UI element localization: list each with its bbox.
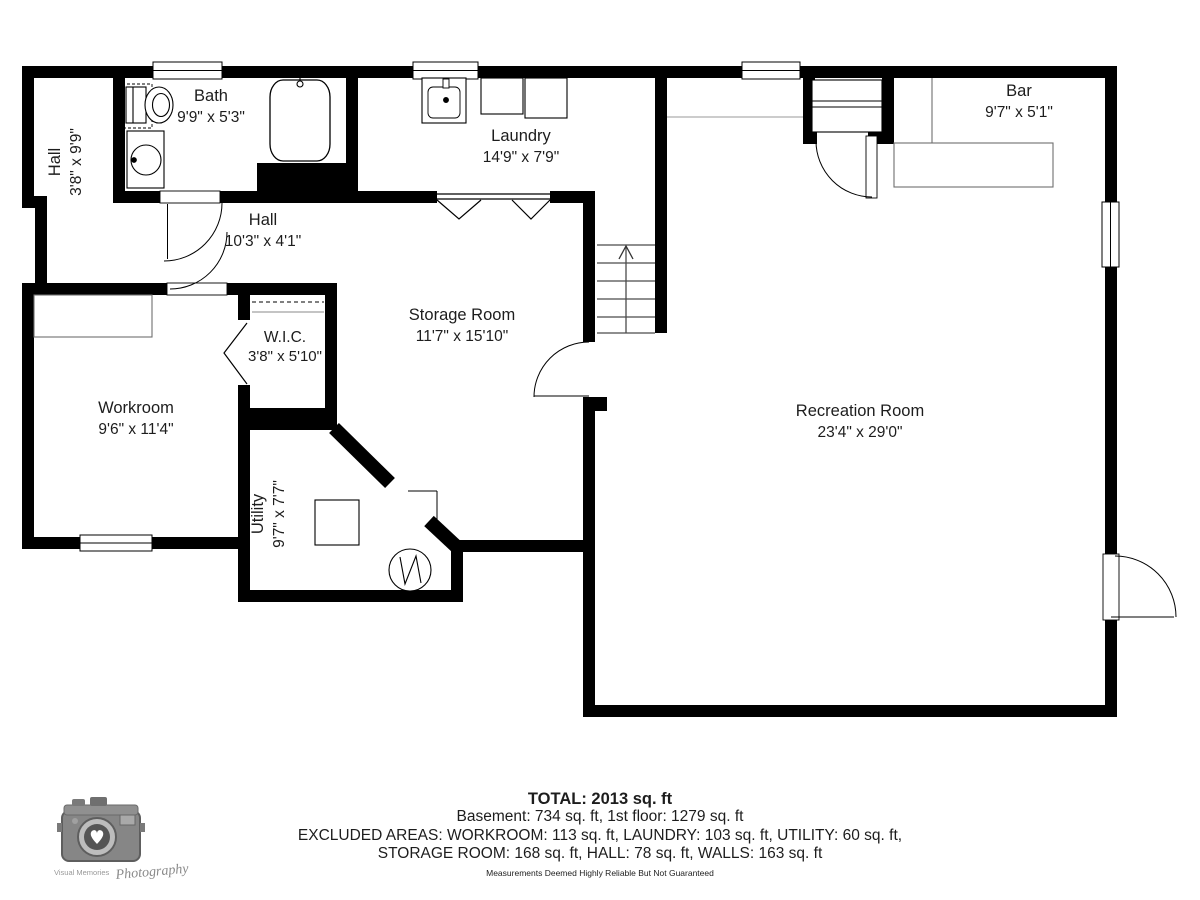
water-heater-icon	[389, 549, 431, 591]
laundry-bifold-door	[437, 194, 550, 219]
room-dims: 10'3" x 4'1"	[225, 231, 301, 252]
room-dims: 9'9" x 5'3"	[177, 107, 245, 128]
bath-sink-icon	[127, 131, 164, 188]
room-name: Laundry	[483, 126, 559, 147]
utility-door	[408, 491, 437, 520]
furnace-icon	[315, 500, 359, 545]
hall-door	[167, 232, 227, 295]
toilet-icon	[122, 84, 173, 128]
room-label-bath: Bath 9'9" x 5'3"	[177, 86, 245, 128]
wic-bifold-door	[224, 323, 247, 384]
room-name: Bath	[177, 86, 245, 107]
room-label-wic: W.I.C. 3'8" x 5'10"	[248, 328, 322, 366]
closet-rod	[252, 302, 324, 312]
room-name: Bar	[985, 81, 1053, 102]
washer-icon	[481, 78, 523, 114]
floor-plan-page: Hall 3'8" x 9'9" Bath 9'9" x 5'3" Laundr…	[0, 0, 1200, 900]
room-name: W.I.C.	[248, 328, 322, 347]
room-dims: 3'8" x 9'9"	[66, 128, 87, 196]
logo-script-text: Photography	[114, 862, 190, 883]
window-top-right	[742, 62, 800, 79]
logo: Visual Memories Photography	[30, 795, 210, 885]
room-label-hall-upper: Hall 3'8" x 9'9"	[45, 128, 87, 196]
room-label-recreation: Recreation Room 23'4" x 29'0"	[796, 401, 924, 443]
room-name: Utility	[248, 480, 269, 548]
window-top-laundry	[413, 62, 478, 79]
closet-door	[816, 136, 877, 198]
room-label-laundry: Laundry 14'9" x 7'9"	[483, 126, 559, 168]
room-name: Hall	[225, 210, 301, 231]
room-dims: 3'8" x 5'10"	[248, 347, 322, 366]
camera-icon	[57, 797, 145, 861]
workroom-counter	[34, 295, 152, 337]
window-recreation-right	[1102, 202, 1119, 267]
windows	[80, 62, 1119, 551]
room-label-workroom: Workroom 9'6" x 11'4"	[98, 398, 174, 440]
dryer-icon	[525, 78, 567, 118]
room-name: Recreation Room	[796, 401, 924, 422]
storage-door	[534, 342, 589, 397]
room-dims: 9'6" x 11'4"	[98, 419, 174, 440]
exterior-door	[1103, 554, 1176, 620]
room-dims: 11'7" x 15'10"	[409, 326, 515, 347]
bathtub-icon	[270, 72, 330, 161]
bath-door	[160, 191, 222, 261]
laundry-sink-icon	[422, 78, 466, 123]
walls	[22, 66, 1117, 717]
room-dims: 23'4" x 29'0"	[796, 422, 924, 443]
room-name: Storage Room	[409, 305, 515, 326]
window-top-bath	[153, 62, 222, 79]
room-dims: 9'7" x 7'7"	[269, 480, 290, 548]
window-workroom	[80, 535, 152, 551]
diagonal-walls	[334, 428, 459, 549]
logo-brand-text: Visual Memories	[54, 868, 110, 877]
room-label-hall-lower: Hall 10'3" x 4'1"	[225, 210, 301, 252]
water-tank-icon	[812, 80, 882, 132]
room-dims: 14'9" x 7'9"	[483, 147, 559, 168]
room-name: Hall	[45, 128, 66, 196]
room-label-utility: Utility 9'7" x 7'7"	[248, 480, 290, 548]
room-label-bar: Bar 9'7" x 5'1"	[985, 81, 1053, 123]
doors	[160, 136, 1176, 620]
stairs	[597, 245, 655, 333]
room-label-storage: Storage Room 11'7" x 15'10"	[409, 305, 515, 347]
room-name: Workroom	[98, 398, 174, 419]
room-dims: 9'7" x 5'1"	[985, 102, 1053, 123]
